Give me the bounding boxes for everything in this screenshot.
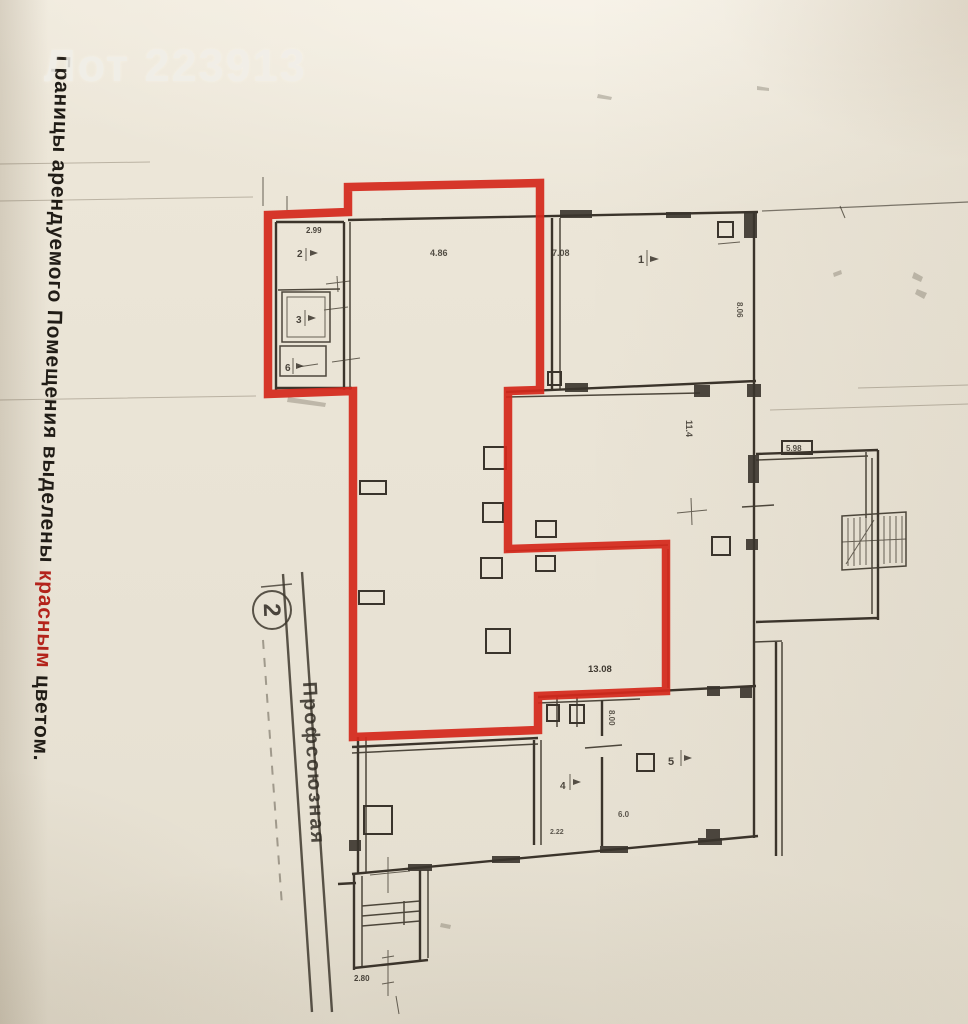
room-label: 8.00 — [607, 710, 616, 726]
room-label: 6 — [285, 363, 291, 374]
room-label: 5 — [668, 756, 674, 768]
room-label: 4.86 — [430, 248, 448, 258]
caption-suffix: цветом. — [29, 668, 55, 762]
room-label: 7.08 — [552, 248, 570, 258]
rental-boundary-outline — [268, 183, 666, 737]
room-label: 2.22 — [550, 829, 564, 836]
room-label: 4 — [560, 781, 566, 792]
photographed-floor-plan-page: { "photo": { "lot_overlay": "Лот 223913"… — [0, 0, 968, 1024]
site-boundary-line — [762, 202, 968, 211]
room-label: 8.06 — [735, 302, 744, 318]
lot-number-overlay: Лот 223913 — [44, 40, 307, 92]
paper-smudges — [287, 86, 927, 929]
street-marker-number: 2 — [258, 603, 285, 617]
room-label: 11.4 — [684, 420, 694, 437]
room-label: 2.80 — [354, 974, 370, 983]
room-label: 1 — [638, 254, 644, 266]
room-label: 2.99 — [306, 226, 322, 235]
room-label: 3 — [296, 315, 302, 326]
room-label: 2 — [297, 249, 303, 260]
street-connector-tick — [261, 584, 292, 587]
street-name-label: Профсоюзная — [298, 681, 329, 845]
room-label: 5.98 — [786, 444, 802, 453]
paper-creases — [0, 162, 968, 410]
room-label: 13.08 — [588, 664, 612, 675]
floor-plan-drawing: 2 Профсоюзная 2.99 2 3 6 4.86 7.08 1 8.0… — [0, 0, 968, 1024]
street-dashed-line — [263, 640, 282, 906]
caption-highlight: красным — [32, 570, 58, 669]
room-label: 6.0 — [618, 810, 630, 819]
wall-fill-blocks — [349, 210, 761, 871]
